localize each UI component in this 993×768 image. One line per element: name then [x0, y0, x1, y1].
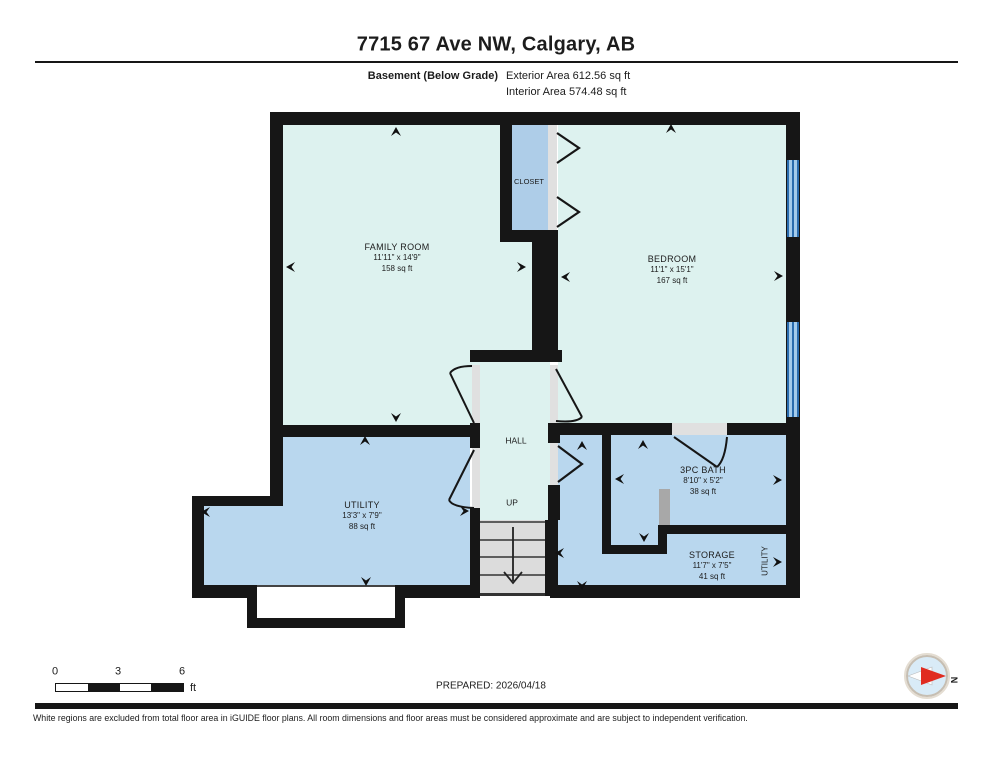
footer-divider — [35, 703, 958, 709]
floorplan-page: 7715 67 Ave NW, Calgary, AB Basement (Be… — [0, 0, 993, 768]
bifold-door-icon — [557, 133, 582, 482]
dimension-arrows — [201, 124, 783, 590]
scale-segment — [88, 684, 120, 691]
storage-label: STORAGE 11'7" x 7'5" 41 sq ft — [689, 549, 735, 583]
scale-tick-3: 3 — [115, 665, 121, 680]
utility-vertical-label: UTILITY — [761, 546, 772, 576]
disclaimer-text: White regions are excluded from total fl… — [33, 713, 973, 723]
scale-segment — [120, 684, 152, 691]
scale-segment — [151, 684, 183, 691]
scale-tick-0: 0 — [52, 665, 58, 680]
compass-north-label: N — [948, 677, 960, 684]
bath-label: 3PC BATH 8'10" x 5'2" 38 sq ft — [680, 464, 726, 498]
prepared-date: PREPARED: 2026/04/18 — [436, 679, 546, 693]
scale-tick-6: 6 — [179, 665, 185, 680]
closet-label: CLOSET — [514, 177, 544, 187]
up-label: UP — [506, 497, 518, 508]
scale-bar — [55, 683, 184, 692]
utility-label: UTILITY 13'3" x 7'9" 88 sq ft — [342, 499, 381, 533]
plan-annotations — [0, 0, 993, 768]
scale-segment — [56, 684, 88, 691]
scale-unit: ft — [190, 682, 196, 694]
hall-label: HALL — [505, 435, 526, 446]
family-room-label: FAMILY ROOM 11'11" x 14'9" 158 sq ft — [365, 241, 430, 275]
stair-direction-arrow — [504, 527, 522, 583]
bedroom-label: BEDROOM 11'1" x 15'1" 167 sq ft — [648, 253, 697, 287]
